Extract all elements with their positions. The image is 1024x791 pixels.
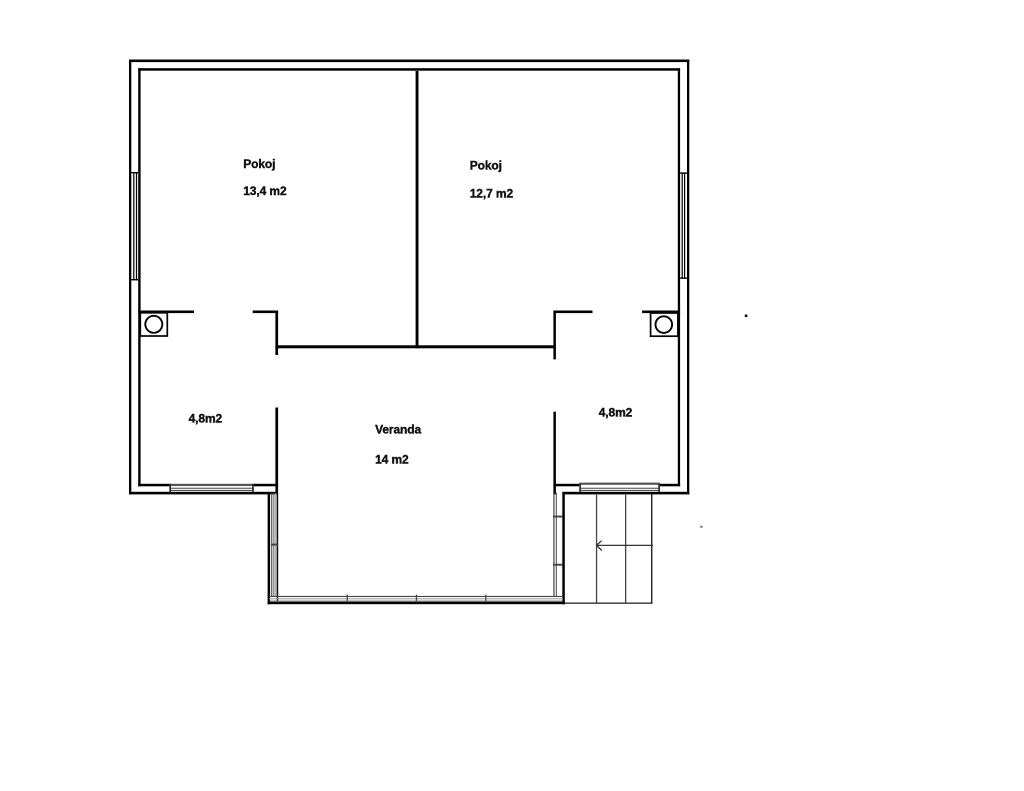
svg-text:12,7 m2: 12,7 m2 — [470, 186, 514, 200]
svg-text:13,4 m2: 13,4 m2 — [243, 184, 287, 198]
svg-text:Pokoj: Pokoj — [243, 157, 275, 171]
svg-text:14 m2: 14 m2 — [375, 453, 409, 467]
svg-text:Pokoj: Pokoj — [470, 159, 502, 173]
svg-text:4,8m2: 4,8m2 — [599, 406, 633, 420]
svg-text:Veranda: Veranda — [375, 422, 421, 436]
svg-text:4,8m2: 4,8m2 — [189, 412, 223, 426]
